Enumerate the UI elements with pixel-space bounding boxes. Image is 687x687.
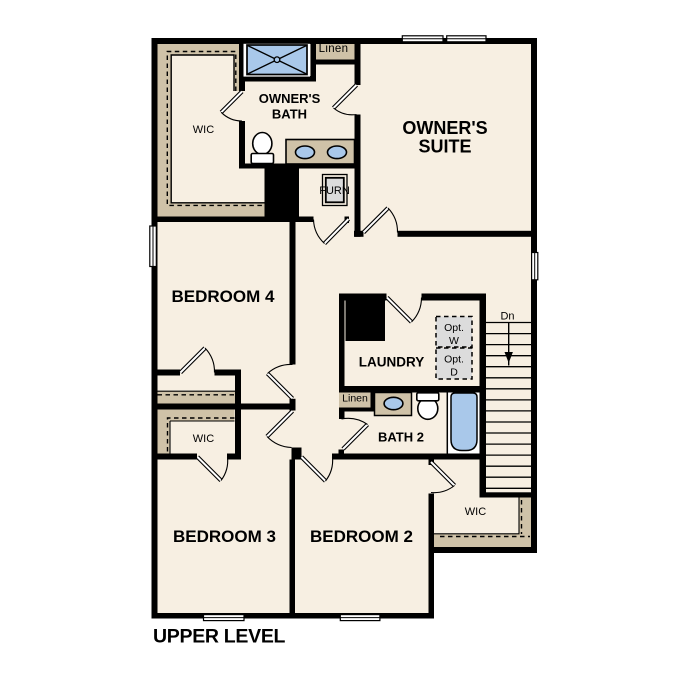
svg-text:Opt.: Opt. — [444, 354, 464, 366]
svg-text:BEDROOM 3: BEDROOM 3 — [173, 527, 276, 546]
svg-text:FURN: FURN — [319, 185, 350, 197]
svg-text:WIC: WIC — [465, 506, 486, 518]
svg-text:WIC: WIC — [193, 124, 214, 136]
svg-text:WIC: WIC — [193, 433, 214, 445]
svg-text:W: W — [449, 335, 459, 347]
svg-text:Linen: Linen — [319, 43, 349, 55]
svg-text:SUITE: SUITE — [418, 137, 471, 157]
svg-text:Opt.: Opt. — [444, 322, 464, 334]
svg-text:OWNER'S: OWNER'S — [402, 118, 487, 138]
svg-text:BEDROOM 2: BEDROOM 2 — [310, 527, 413, 546]
svg-text:BATH 2: BATH 2 — [378, 430, 424, 445]
svg-text:BATH: BATH — [272, 107, 307, 122]
svg-text:LAUNDRY: LAUNDRY — [359, 355, 425, 370]
svg-text:BEDROOM 4: BEDROOM 4 — [172, 287, 276, 306]
svg-text:OWNER'S: OWNER'S — [259, 91, 321, 106]
svg-text:Dn: Dn — [500, 311, 514, 323]
svg-text:Linen: Linen — [342, 393, 368, 405]
svg-text:UPPER LEVEL: UPPER LEVEL — [153, 626, 286, 648]
svg-text:D: D — [450, 367, 458, 379]
